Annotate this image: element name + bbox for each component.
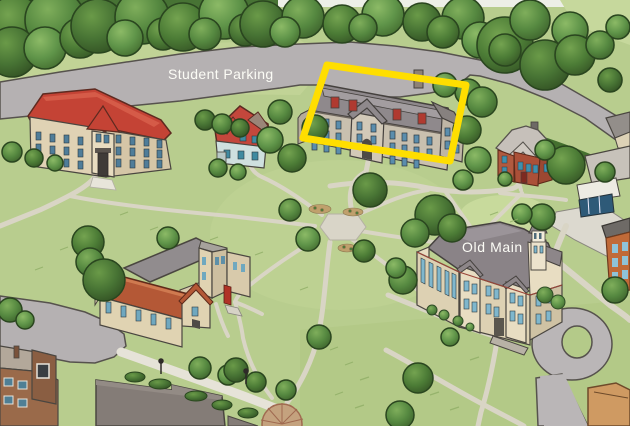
svg-text:Student Parking: Student Parking <box>168 66 274 82</box>
svg-text:Old Main: Old Main <box>462 239 523 255</box>
